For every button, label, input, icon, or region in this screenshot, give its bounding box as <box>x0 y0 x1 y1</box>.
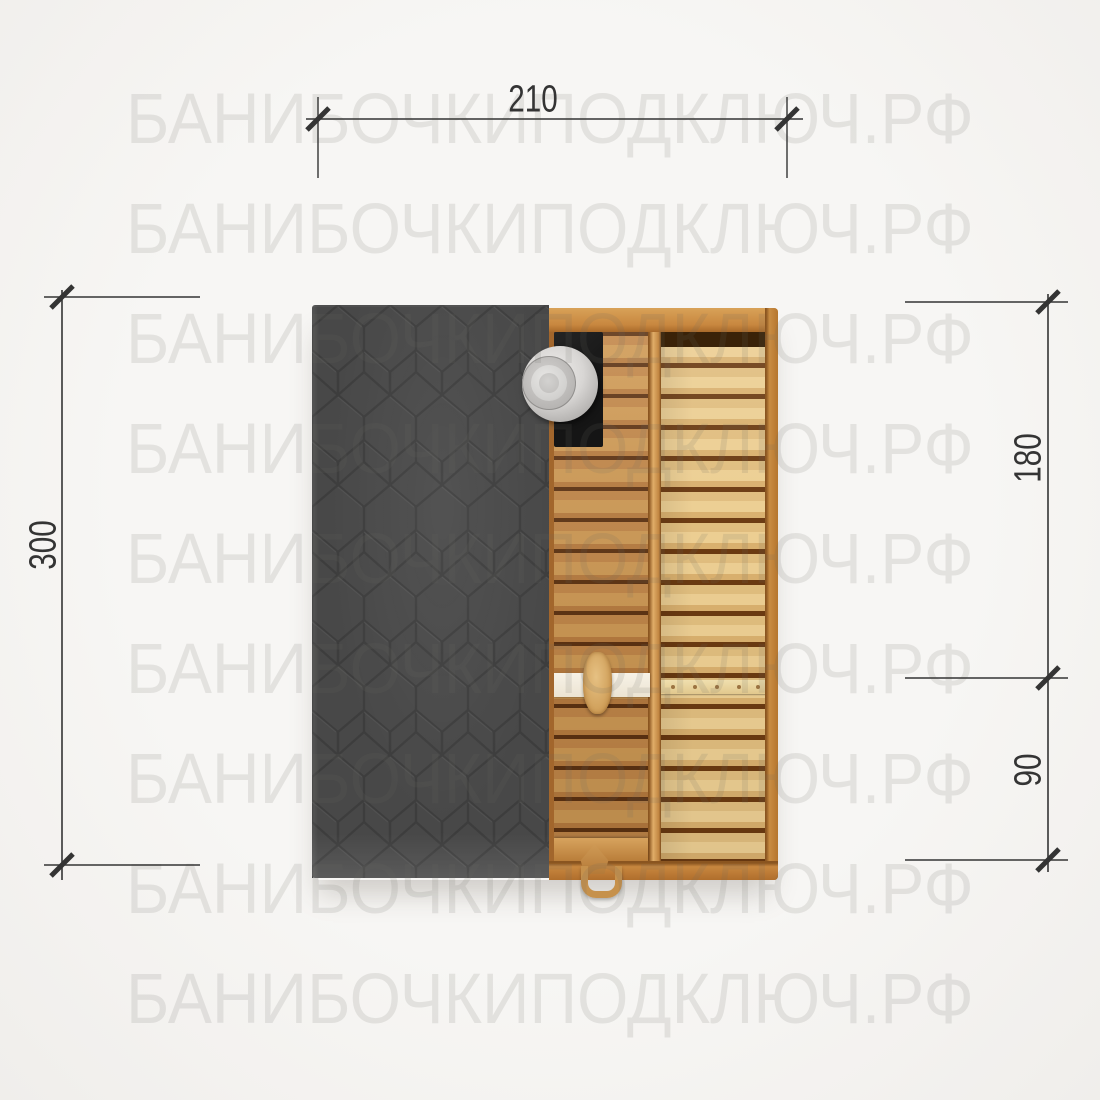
bench-top-gap <box>661 332 766 347</box>
door-inner-handle <box>583 652 612 714</box>
divider-rail <box>648 332 661 862</box>
roof-lighting <box>312 305 549 878</box>
wood-right-rim <box>765 308 778 880</box>
dim-label-right-upper: 180 <box>1008 433 1051 482</box>
watermark-text: БАНИБОЧКИПОДКЛЮЧ.РФ <box>126 960 1037 1040</box>
dim-label-right-lower: 90 <box>1008 754 1051 787</box>
bench-planks <box>661 332 766 862</box>
bench-edge-board <box>661 680 766 694</box>
dim-top <box>306 97 803 178</box>
dim-label-width: 210 <box>508 79 557 122</box>
watermark-text: БАНИБОЧКИПОДКЛЮЧ.РФ <box>126 190 1037 270</box>
chimney-center-cap <box>539 373 559 393</box>
door-handle-loop <box>581 866 622 898</box>
watermark-text: БАНИБОЧКИПОДКЛЮЧ.РФ <box>126 80 1037 160</box>
roof-shingles <box>312 305 549 878</box>
dim-left <box>44 286 200 880</box>
dim-right <box>905 291 1068 872</box>
sauna-plan-drawing: БАНИБОЧКИПОДКЛЮЧ.РФ БАНИБОЧКИПОДКЛЮЧ.РФ … <box>0 0 1100 1100</box>
wood-top-rim <box>549 308 778 332</box>
dim-label-height: 300 <box>23 520 66 569</box>
